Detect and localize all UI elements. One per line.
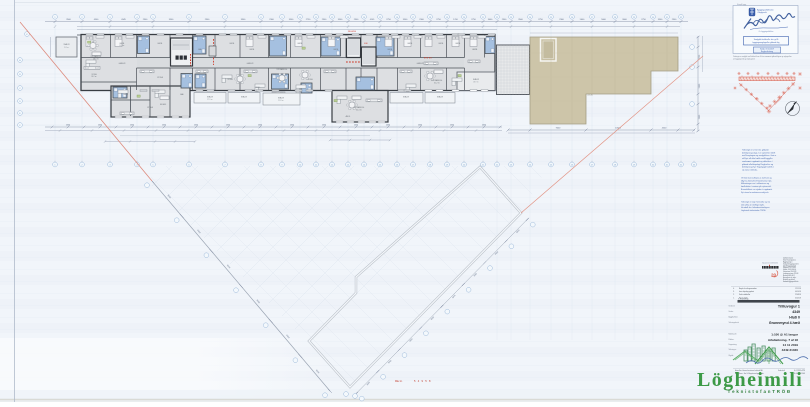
svg-text:Málsetningar eru í millimetrum: Málsetningar eru í millimetrum og (741, 182, 769, 185)
svg-text:04.10.19: 04.10.19 (795, 291, 801, 293)
svg-text:SVALIR: SVALIR (403, 96, 410, 99)
svg-text:HERB.: HERB. (120, 43, 125, 45)
svg-text:SVALIR: SVALIR (241, 96, 248, 99)
svg-text:Teikning nr:: Teikning nr: (729, 349, 738, 351)
svg-text:2300: 2300 (450, 125, 454, 127)
svg-text:Trilluvogur 1: Trilluvogur 1 (778, 305, 800, 309)
svg-text:deiliskipulagi fyrir Vogabyggð: deiliskipulagi fyrir Vogabyggð svæði 2, (742, 166, 775, 169)
svg-text:Brunahólfanir eru sýndar á upp: Brunahólfanir eru sýndar á uppdrætti. (741, 188, 773, 191)
svg-text:Sjá nánar brunahönnunarskýrslu: Sjá nánar brunahönnunarskýrslu. (741, 191, 769, 194)
svg-text:Samþykkt áskilnaður skv. gr.li: Samþykkt áskilnaður skv. gr.lið (754, 38, 778, 41)
svg-text:1:100 @ A1 langur: 1:100 @ A1 langur (771, 333, 799, 337)
svg-text:22.08.19: 22.08.19 (795, 294, 801, 296)
svg-text:HERB.: HERB. (250, 49, 255, 51)
svg-text:ELDH.: ELDH. (256, 87, 261, 89)
svg-text:12.11.19: 12.11.19 (795, 288, 801, 290)
svg-text:2300: 2300 (66, 125, 70, 127)
svg-text:2300: 2300 (258, 125, 262, 127)
svg-text:um byggingarmál og skipulagsmá: um byggingarmál og skipulagsmál (733, 58, 755, 60)
svg-text:2300: 2300 (194, 125, 198, 127)
svg-text:Teikningin er eign hönnuðar og: Teikningin er eign hönnuðar og má (741, 201, 771, 204)
svg-text:2300: 2300 (226, 125, 230, 127)
svg-text:Hluti 0: Hluti 0 (789, 316, 800, 320)
svg-text:Lögheimili teiknistofan TRÖÐ.: Lögheimili teiknistofan TRÖÐ. (741, 209, 766, 212)
svg-text:HERB.: HERB. (334, 49, 339, 51)
svg-text:EI60: EI60 (364, 43, 368, 45)
svg-text:SVALIR: SVALIR (64, 43, 71, 46)
svg-text:gildandi aðalskipulagi Reykjav: gildandi aðalskipulagi Reykjavíkur og (742, 163, 773, 166)
svg-text:sjá nánar skilmála.: sjá nánar skilmála. (742, 168, 758, 171)
svg-text:2300: 2300 (98, 125, 102, 127)
svg-text:Lögheimili: Lögheimili (697, 369, 803, 391)
svg-text:31.2 m²: 31.2 m² (434, 81, 440, 84)
svg-text:HERB.: HERB. (158, 43, 163, 45)
svg-text:28.5 m²: 28.5 m² (93, 57, 99, 60)
svg-text:HERB.: HERB. (472, 49, 478, 51)
svg-text:Reykjavíkurborg: Reykjavíkurborg (761, 50, 773, 53)
svg-text:Verndað skv. höfundarréttarlög: Verndað skv. höfundarréttarlögum. (741, 206, 770, 209)
svg-text:HERB.: HERB. (230, 43, 235, 45)
svg-text:Grunnmynd 4.hæð: Grunnmynd 4.hæð (769, 320, 800, 325)
svg-text:STOFA/ELDH.: STOFA/ELDH. (277, 68, 288, 71)
svg-text:Öll mál skal staðreyna á staðn: Öll mál skal staðreyna á staðnum og (741, 177, 772, 180)
svg-text:HERB.: HERB. (456, 43, 461, 45)
svg-text:Teikningin er unnin skv. gilda: Teikningin er unnin skv. gildandi (742, 149, 769, 152)
svg-text:hæðarkótar í metrum yfir sjáva: hæðarkótar í metrum yfir sjávarmáli. (741, 185, 772, 188)
svg-text:STOFA: STOFA (147, 106, 153, 109)
svg-text:HERB.: HERB. (298, 43, 303, 45)
svg-text:Reykjavík 14.11.2019: Reykjavík 14.11.2019 (783, 267, 796, 269)
svg-text:Aðalteikning- 7 af 18: Aðalteikning- 7 af 18 (768, 337, 798, 342)
svg-text:+13.45: +13.45 (587, 95, 593, 97)
svg-text:Flokkur:: Flokkur: (729, 339, 735, 341)
svg-text:HERB.: HERB. (124, 94, 129, 96)
svg-text:2300: 2300 (418, 125, 422, 127)
svg-text:14 11 2019: 14 11 2019 (783, 343, 799, 347)
svg-text:02.05.19: 02.05.19 (795, 297, 801, 299)
svg-text:4349: 4349 (792, 310, 800, 314)
svg-text:Skjalanúmer 2019110054: Skjalanúmer 2019110054 (762, 263, 778, 265)
svg-text:SVALIR: SVALIR (207, 96, 214, 99)
svg-text:samkvæmt uppdrætti og skilmálu: samkvæmt uppdrætti og skilmálum í (742, 160, 773, 163)
svg-text:5 4 9 5 8: 5 4 9 5 8 (414, 379, 431, 383)
svg-text:2300: 2300 (290, 125, 294, 127)
svg-text:ekki afrita án skriflegs leyfi: ekki afrita án skriflegs leyfis. (741, 203, 765, 206)
svg-text:með breytingum og samþykktum.: með breytingum og samþykktum. Gert er (742, 154, 777, 157)
svg-text:2300: 2300 (162, 125, 166, 127)
svg-text:deiliskipulagi dags. 14. septe: deiliskipulagi dags. 14. september 2018 (742, 151, 775, 154)
svg-text:2300: 2300 (482, 125, 486, 127)
svg-text:Byggingarfulltrúinn: Byggingarfulltrúinn (757, 9, 774, 12)
svg-text:32.4 m²: 32.4 m² (356, 109, 362, 112)
svg-text:SVALIR: SVALIR (437, 96, 444, 99)
svg-text:T e k n i s t o f a n T R Ö: T e k n i s t o f a n T R Ö Ð (728, 389, 791, 394)
svg-text:SVALIR: SVALIR (278, 97, 285, 100)
svg-text:2300: 2300 (322, 125, 326, 127)
svg-text:2300: 2300 (130, 125, 134, 127)
svg-text:2300: 2300 (354, 125, 358, 127)
svg-text:í Reykjavík: í Reykjavík (757, 12, 767, 14)
svg-text:HERB.: HERB. (439, 43, 444, 45)
svg-text:HERB.: HERB. (408, 43, 413, 45)
svg-text:ráð fyrir að allar hæðir verði: ráð fyrir að allar hæðir verði byggðar (742, 157, 773, 160)
svg-text:Mkv.nr.: Mkv.nr. (395, 380, 403, 383)
svg-text:tilkynna hönnuði ef frávik kom: tilkynna hönnuði ef frávik koma í ljós. (741, 179, 772, 182)
svg-text:HERB.: HERB. (388, 49, 393, 51)
svg-text:REI-M90: REI-M90 (348, 31, 357, 33)
svg-text:SVALIR: SVALIR (473, 78, 480, 81)
svg-text:STOFA: STOFA (157, 76, 163, 79)
svg-text:byggingarreglugerðar gildandi: byggingarreglugerðar gildandi lög (753, 41, 780, 44)
svg-text:4349 31040: 4349 31040 (782, 348, 799, 352)
svg-text:Verknr:: Verknr: (729, 311, 735, 313)
svg-text:2300: 2300 (386, 125, 390, 127)
